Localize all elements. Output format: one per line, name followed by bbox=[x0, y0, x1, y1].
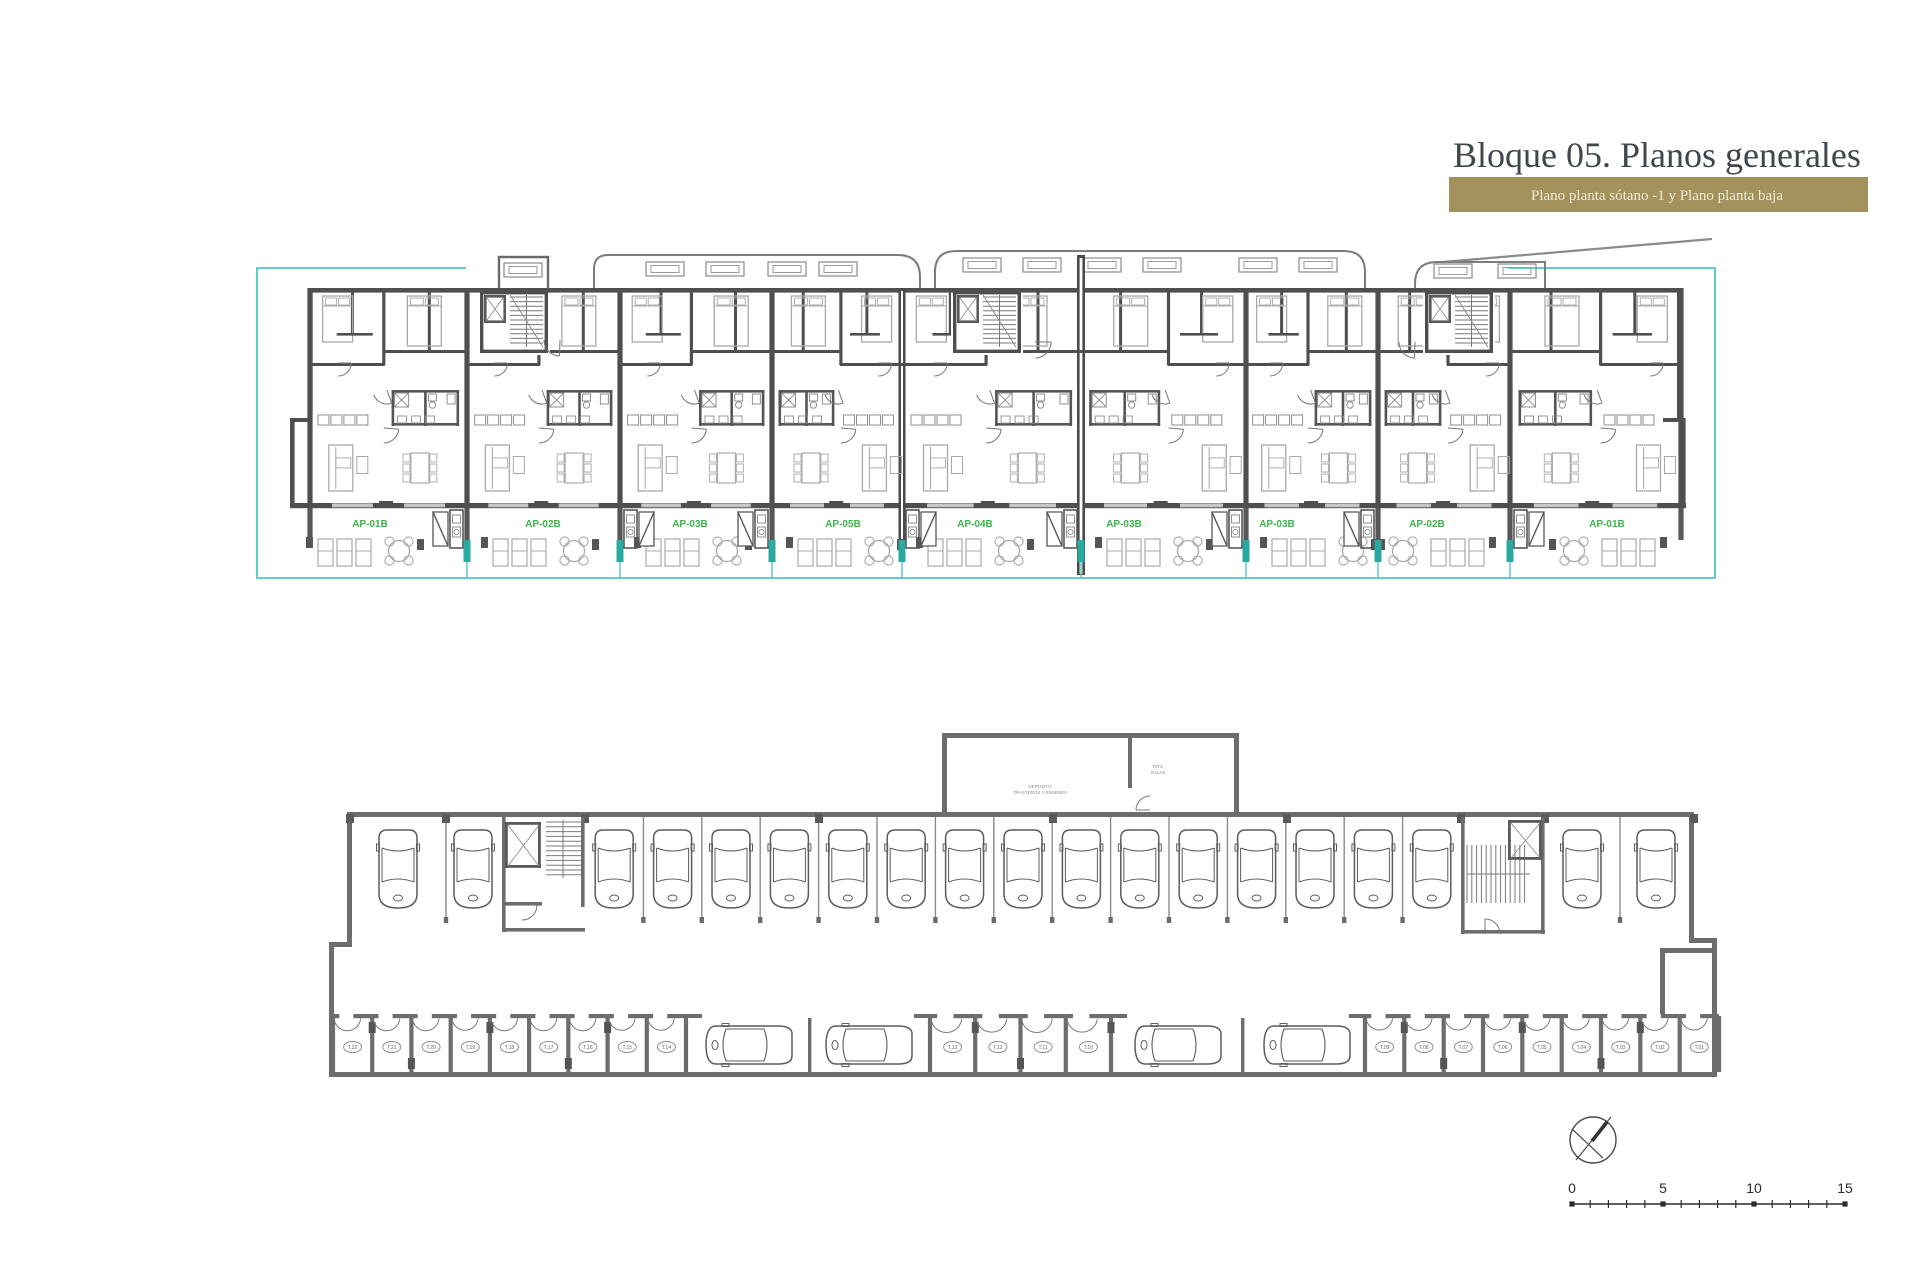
svg-text:T.14: T.14 bbox=[662, 1045, 672, 1051]
svg-text:AP-02B: AP-02B bbox=[1409, 519, 1445, 530]
svg-text:Bloque 05. Planos generales: Bloque 05. Planos generales bbox=[1453, 135, 1861, 175]
svg-text:T.05: T.05 bbox=[1537, 1045, 1547, 1051]
svg-text:T.08: T.08 bbox=[1419, 1045, 1429, 1051]
svg-text:AP-05B: AP-05B bbox=[825, 519, 861, 530]
svg-text:AP-02B: AP-02B bbox=[525, 519, 561, 530]
svg-text:T.02: T.02 bbox=[1655, 1045, 1665, 1051]
svg-text:T.15: T.15 bbox=[622, 1045, 632, 1051]
svg-text:T.06: T.06 bbox=[1498, 1045, 1508, 1051]
svg-text:T.11: T.11 bbox=[1039, 1045, 1048, 1051]
svg-text:T.16: T.16 bbox=[583, 1045, 593, 1051]
svg-text:T.12: T.12 bbox=[993, 1045, 1003, 1051]
svg-text:AP-04B: AP-04B bbox=[957, 519, 993, 530]
svg-text:T.18: T.18 bbox=[505, 1045, 515, 1051]
svg-text:AP-03B: AP-03B bbox=[672, 519, 708, 530]
svg-text:TRASTEROS Y ENSERES: TRASTEROS Y ENSERES bbox=[1013, 790, 1067, 795]
svg-text:Plano planta sótano -1 y Plano: Plano planta sótano -1 y Plano planta ba… bbox=[1531, 188, 1783, 204]
svg-text:DEPOSITO: DEPOSITO bbox=[1028, 784, 1052, 789]
svg-text:T.09: T.09 bbox=[1380, 1045, 1390, 1051]
svg-text:RITU: RITU bbox=[1153, 764, 1164, 769]
svg-text:5: 5 bbox=[1659, 1180, 1667, 1196]
svg-text:T.07: T.07 bbox=[1459, 1045, 1469, 1051]
svg-text:T.10: T.10 bbox=[1084, 1045, 1094, 1051]
svg-text:T.21: T.21 bbox=[387, 1045, 397, 1051]
svg-text:SALAS: SALAS bbox=[1151, 770, 1166, 775]
svg-text:T.03: T.03 bbox=[1616, 1045, 1626, 1051]
svg-text:T.01: T.01 bbox=[1695, 1045, 1705, 1051]
svg-text:T.17: T.17 bbox=[544, 1045, 554, 1051]
svg-text:AP-03B: AP-03B bbox=[1259, 519, 1295, 530]
svg-text:T.22: T.22 bbox=[348, 1045, 358, 1051]
svg-text:15: 15 bbox=[1837, 1180, 1853, 1196]
svg-text:10: 10 bbox=[1746, 1180, 1762, 1196]
svg-text:T.19: T.19 bbox=[466, 1045, 476, 1051]
svg-text:T.20: T.20 bbox=[426, 1045, 436, 1051]
svg-text:T.13: T.13 bbox=[948, 1045, 958, 1051]
svg-text:AP-03B: AP-03B bbox=[1106, 519, 1142, 530]
svg-text:0: 0 bbox=[1568, 1180, 1576, 1196]
svg-text:T.04: T.04 bbox=[1577, 1045, 1587, 1051]
svg-text:AP-01B: AP-01B bbox=[352, 519, 388, 530]
svg-text:AP-01B: AP-01B bbox=[1589, 519, 1625, 530]
